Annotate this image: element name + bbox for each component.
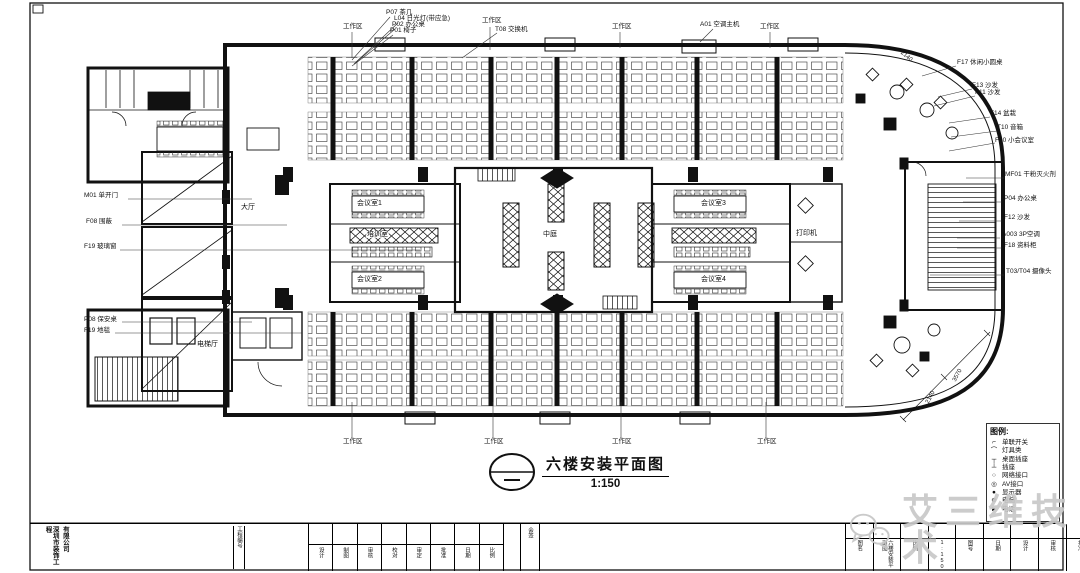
legend-item: ┴ 插座 (990, 464, 1056, 472)
signature-cell: 比例 (479, 524, 504, 571)
plan-title-text: 六楼安装平面图 (542, 453, 669, 477)
label-p08: P08 保安桌 (84, 317, 117, 324)
room-label-atrium: 中庭 (542, 231, 558, 238)
label-f19: F19 玻璃窗 (84, 244, 117, 251)
label-t10: T10 音箱 (997, 125, 1023, 132)
toilet-block (88, 70, 228, 126)
label-ws-top-4: 工作区 (760, 24, 780, 31)
signature-cell: 校对 (381, 524, 405, 571)
atrium-core (455, 168, 654, 314)
signature-field-label: 制图 (342, 547, 348, 558)
legend-symbol-icon: ◎ (990, 481, 998, 489)
legend-item-label: 网络接口 (1002, 472, 1028, 480)
wechat-icon (846, 504, 894, 556)
signature-box (431, 524, 454, 545)
signature-cell: 日期 (454, 524, 478, 571)
label-ws-bottom-2: 工作区 (484, 439, 504, 446)
legend-symbol-icon: ○ (990, 472, 998, 480)
label-a01: A01 空调主机 (700, 22, 739, 29)
countersign-cell: 会签 (520, 524, 540, 571)
plan-scale: 1:150 (542, 478, 669, 490)
label-f17: F17 休闲小圆桌 (957, 60, 1003, 67)
signature-field-label: 批准 (440, 547, 446, 558)
legend-item-label: 插座 (1002, 464, 1015, 472)
label-ws-bottom-3: 工作区 (612, 439, 632, 446)
room-label-printer: 打印机 (795, 230, 818, 237)
label-ws-top-2: 工作区 (482, 18, 502, 25)
label-ws-bottom-1: 工作区 (343, 439, 363, 446)
signature-field-label: 审核 (366, 547, 372, 558)
legend-item: ⌒ 灯具类 (990, 447, 1056, 455)
company-line-1: 深圳市装饰工程 (44, 526, 58, 569)
legend-item-label: 桌面插座 (1002, 456, 1028, 464)
signature-cell: 审核 (357, 524, 381, 571)
label-t03-t04: T03/T04 摄像头 (1006, 269, 1052, 276)
signature-box (333, 524, 356, 545)
left-wings (88, 68, 232, 406)
legend-symbol-icon: ┴ (990, 464, 998, 472)
signature-box (382, 524, 405, 545)
elevator-lobby (95, 312, 302, 401)
signature-field-label: 比例 (488, 547, 494, 558)
room-label-hall: 大厅 (240, 204, 256, 211)
label-ws-bottom-4: 工作区 (757, 439, 777, 446)
project-number-label: 工程编号 (236, 526, 242, 548)
legend-symbol-icon: ┬ (990, 456, 998, 464)
label-f18: F18 资料柜 (1004, 243, 1037, 250)
lounge-top-right (856, 68, 958, 139)
plan-title: 六楼安装平面图 1:150 (542, 453, 669, 490)
watermark: 艾三维技术 (846, 494, 1080, 566)
room-label-meeting4: 会议室4 (700, 276, 727, 283)
company-line-2: 有限公司 (61, 526, 68, 569)
room-label-training: 培训室 (366, 231, 389, 238)
countersign-label: 会签 (527, 527, 533, 538)
legend-item-label: AV接口 (1002, 481, 1023, 489)
signature-cell: 审定 (406, 524, 430, 571)
meeting-block-left (330, 184, 460, 302)
legend-symbol-icon: ⌒ (990, 447, 998, 455)
label-p01: P01 椅子 (390, 28, 416, 35)
legend-item: ┬ 桌面插座 (990, 456, 1056, 464)
signature-field-label: 校对 (391, 547, 397, 558)
legend-item-label: 灯具类 (1002, 447, 1022, 455)
label-a003: A003 3P空调 (1002, 232, 1040, 239)
meeting-block-right (652, 184, 842, 302)
section-marker-icon (490, 454, 534, 490)
signature-cells: 设计 制图 审核 校对 审定 (308, 524, 504, 571)
signature-cell: 制图 (332, 524, 356, 571)
room-label-meeting3: 会议室3 (700, 200, 727, 207)
label-f10: F10 小会议室 (995, 138, 1034, 145)
signature-cell: 批准 (430, 524, 454, 571)
label-mf01: MF01 干粉灭火剂 (1005, 172, 1056, 179)
signature-box (358, 524, 381, 545)
room-label-meeting1: 会议室1 (356, 200, 383, 207)
signature-box (407, 524, 430, 545)
label-f19b: F19 地毯 (84, 328, 110, 335)
signature-box (455, 524, 478, 545)
label-m01: M01 单开门 (84, 193, 118, 200)
label-ws-top-3: 工作区 (612, 24, 632, 31)
label-f12: F12 沙发 (1004, 215, 1030, 222)
legend-item: ◎ AV接口 (990, 481, 1056, 489)
signature-box (480, 524, 503, 545)
signature-box (309, 524, 332, 545)
label-f14: F14 盆栽 (990, 111, 1016, 118)
legend-title: 图例: (990, 426, 1056, 437)
company-name: 深圳市装饰工程 有限公司 (44, 526, 68, 569)
signature-cell: 设计 (308, 524, 332, 571)
legend-item: ○ 网络接口 (990, 472, 1056, 480)
signature-field-label: 设计 (318, 547, 324, 558)
watermark-text: 艾三维技术 (902, 494, 1080, 566)
project-number-cell: 工程编号 (233, 526, 245, 569)
legend-item: ⌐ 单联开关 (990, 439, 1056, 447)
label-ws-top-1: 工作区 (343, 24, 363, 31)
room-label-meeting2: 会议室2 (356, 276, 383, 283)
label-f11: F11 沙发 (975, 90, 1001, 97)
label-p04: P04 办公桌 (1004, 196, 1037, 203)
right-stair-rooms (900, 158, 1003, 311)
label-t08: T08 交换机 (495, 27, 528, 34)
room-label-elevator-hall: 电梯厅 (196, 341, 219, 348)
signature-field-label: 日期 (464, 547, 470, 558)
label-f08: F08 围蔽 (86, 219, 112, 226)
floor-plan-graphic (0, 0, 1080, 573)
signature-field-label: 审定 (415, 547, 421, 558)
drawing-canvas: 工作区 P07 茶几 L04 日光灯(带应急) P02 办公桌 P01 椅子 工… (0, 0, 1080, 573)
